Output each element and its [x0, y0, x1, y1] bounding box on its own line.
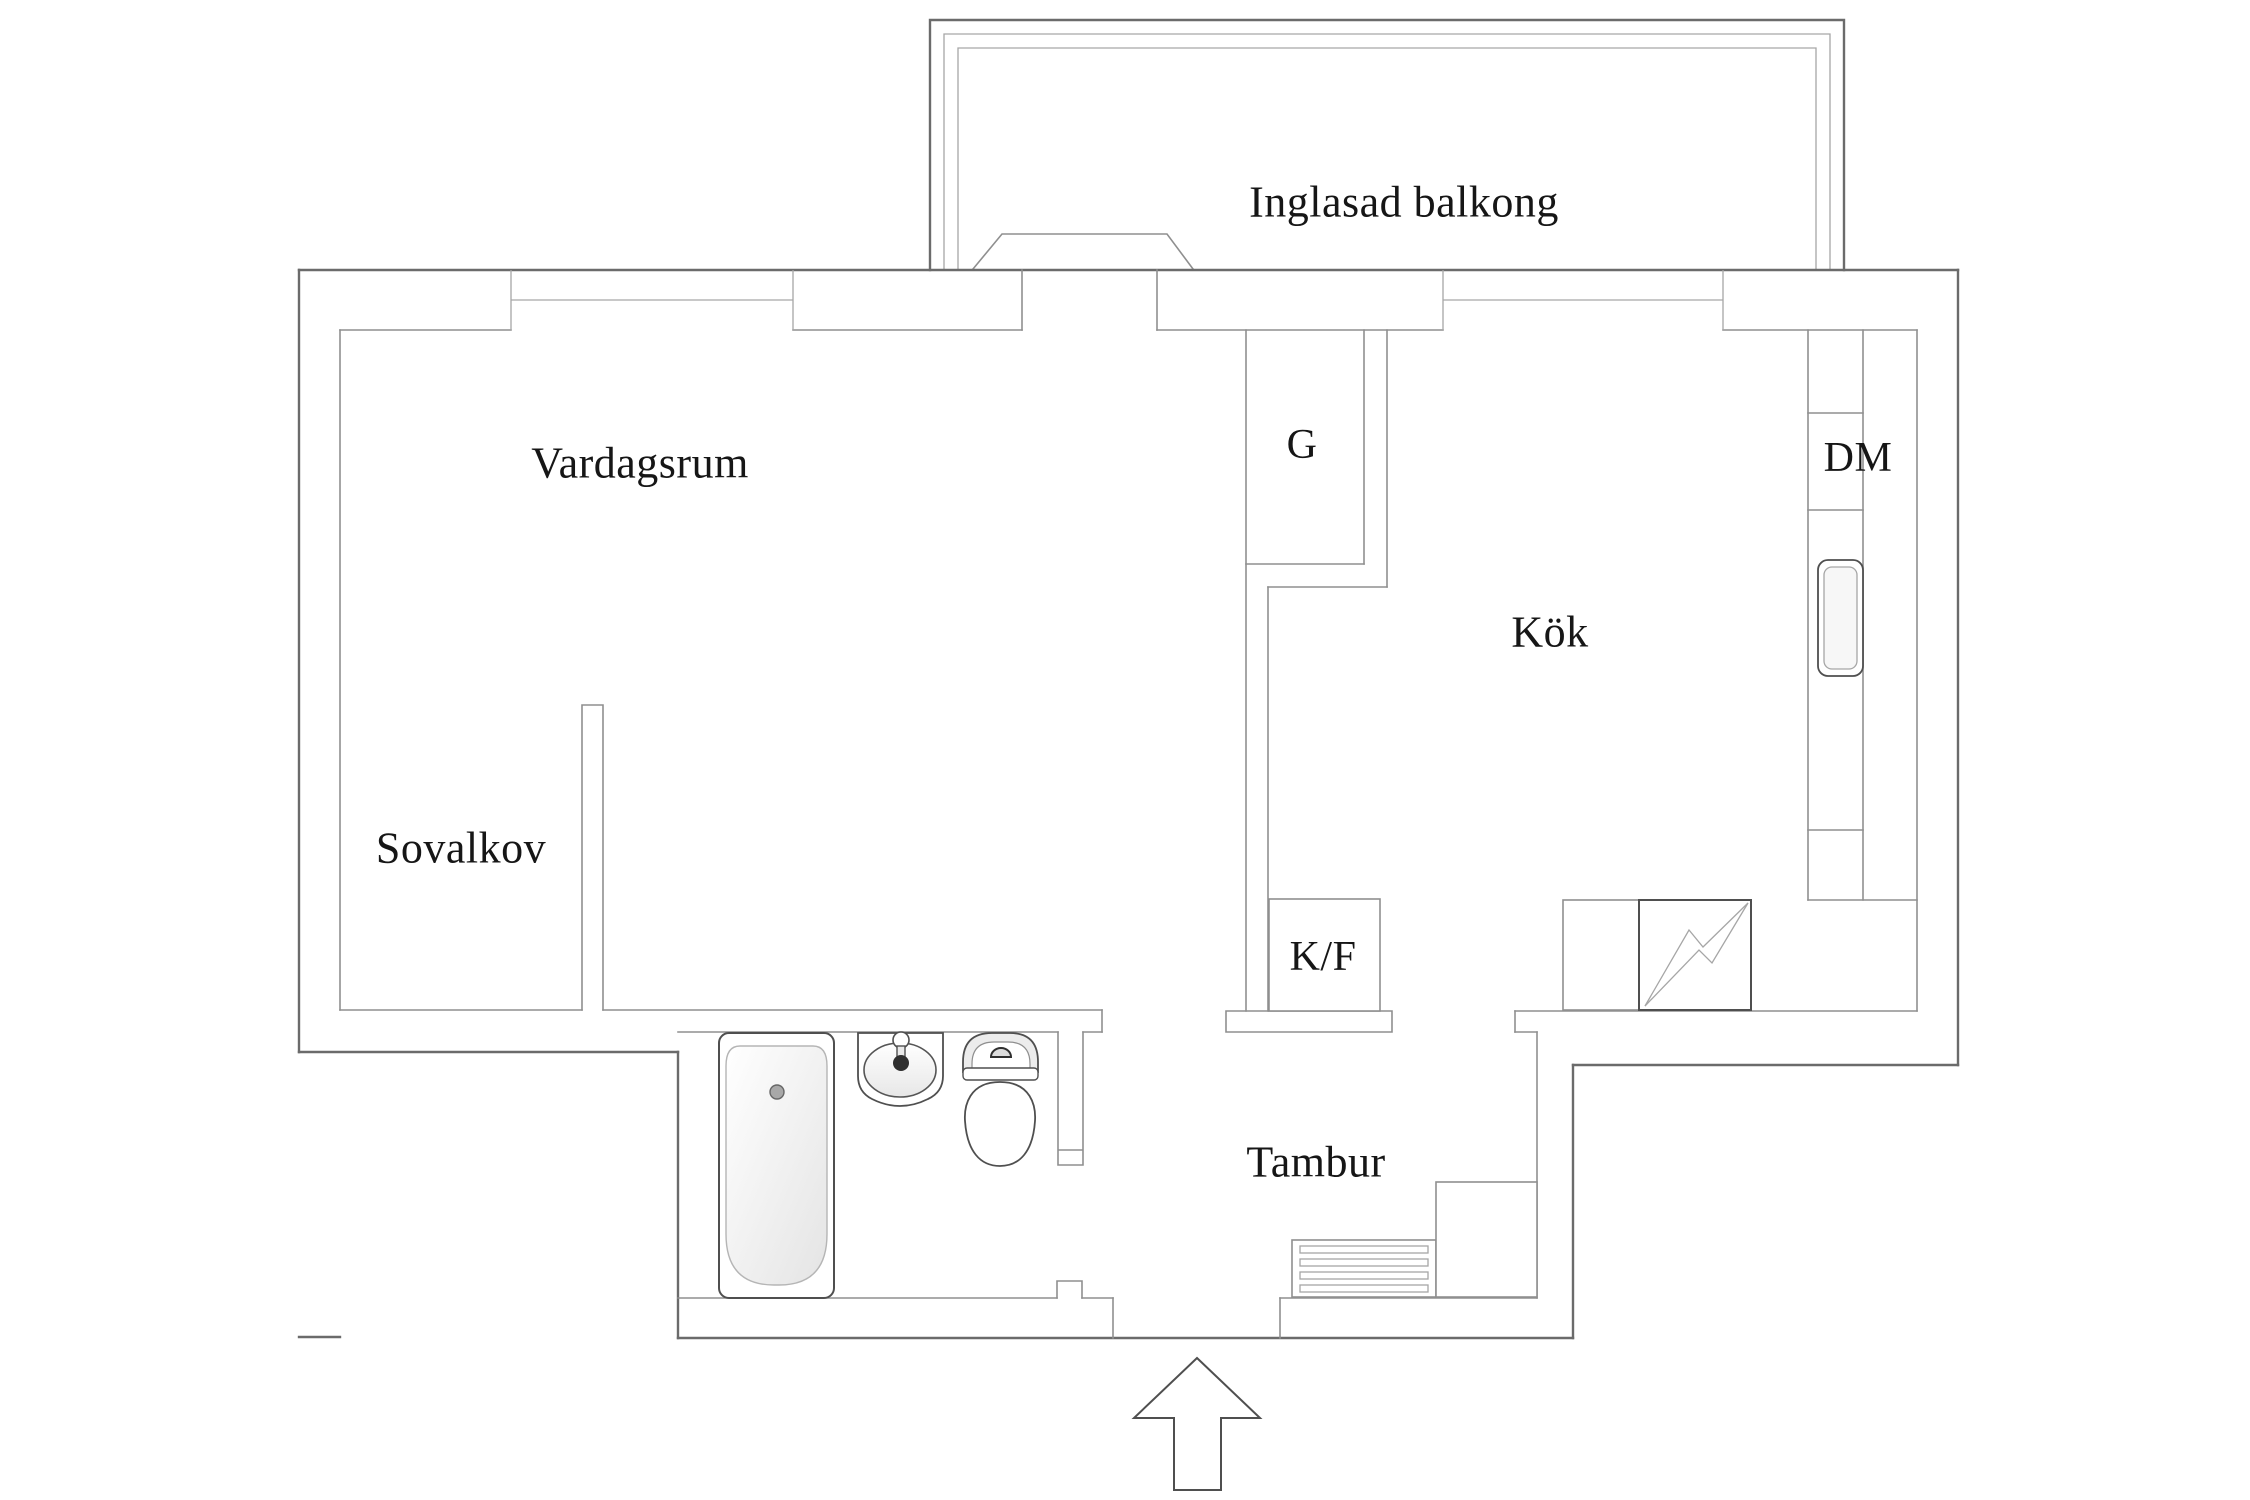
- label-closet: G: [1287, 422, 1318, 468]
- bathtub-icon: [719, 1033, 834, 1298]
- living-room-window: [511, 270, 793, 330]
- exterior-walls: [299, 270, 1958, 1338]
- room-label-sleeping-alcove: Sovalkov: [376, 824, 546, 873]
- alcove-partition-wall: [582, 705, 603, 1010]
- room-labels: Inglasad balkong Vardagsrum Sovalkov Kök…: [376, 178, 1892, 1187]
- interior-walls: [340, 270, 1917, 1338]
- bathroom-wall: [1058, 1032, 1083, 1165]
- windows: [511, 270, 1723, 330]
- toilet-icon: [963, 1033, 1038, 1166]
- kitchen-sink-icon: [1818, 560, 1863, 676]
- label-fridge-freezer: K/F: [1290, 934, 1357, 980]
- sink-icon: [858, 1032, 943, 1106]
- tub-drain: [770, 1085, 784, 1099]
- room-label-balcony: Inglasad balkong: [1249, 178, 1559, 227]
- entry-arrow-icon: [1134, 1358, 1260, 1490]
- stove: [1563, 900, 1751, 1010]
- label-dishwasher: DM: [1824, 435, 1893, 481]
- room-label-hallway: Tambur: [1246, 1138, 1385, 1187]
- kitchen-window: [1443, 270, 1723, 330]
- flush-button: [991, 1048, 1011, 1057]
- balcony: [930, 20, 1844, 270]
- bathroom-door-stub: [1057, 1281, 1082, 1298]
- hall-wardrobe: [1436, 1182, 1537, 1297]
- kitchen-counter: [1808, 330, 1917, 900]
- room-label-kitchen: Kök: [1511, 608, 1588, 657]
- shoe-rack-icon: [1292, 1240, 1436, 1297]
- room-label-living-room: Vardagsrum: [531, 439, 749, 488]
- floor-plan: Inglasad balkong Vardagsrum Sovalkov Kök…: [0, 0, 2250, 1500]
- balcony-door-threshold: [973, 234, 1193, 269]
